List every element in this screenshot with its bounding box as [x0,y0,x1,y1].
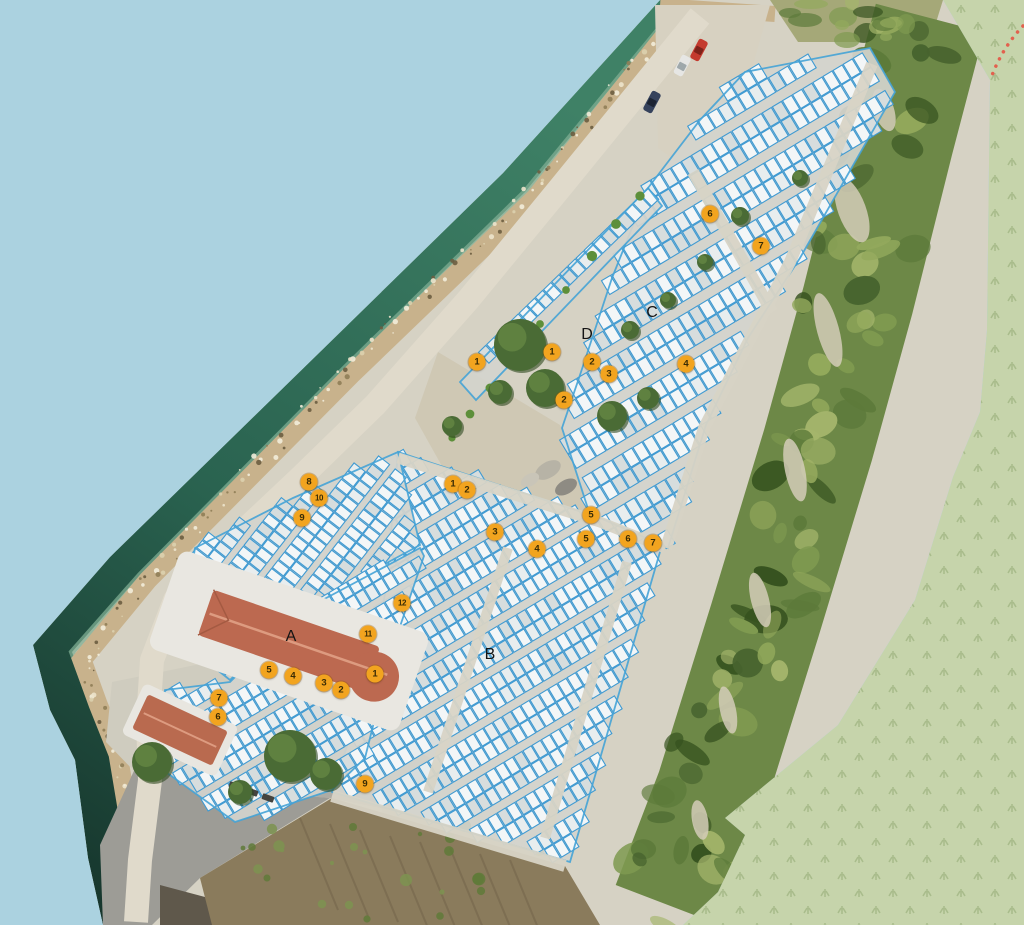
aerial-map-canvas [0,0,1024,925]
zone-label-A: A [286,628,297,646]
berth-marker-3[interactable]: 3 [316,675,333,692]
berth-marker-10[interactable]: 10 [311,490,328,507]
berth-marker-6[interactable]: 6 [210,709,227,726]
berth-marker-12[interactable]: 12 [394,595,411,612]
zone-label-C: C [646,304,658,322]
map-stage: 67112324123455678109121112345769 ABCD [0,0,1024,925]
berth-marker-4[interactable]: 4 [529,541,546,558]
berth-marker-1[interactable]: 1 [469,354,486,371]
berth-marker-2[interactable]: 2 [584,354,601,371]
berth-marker-11[interactable]: 11 [360,626,377,643]
berth-marker-5[interactable]: 5 [583,507,600,524]
berth-marker-3[interactable]: 3 [487,524,504,541]
zone-label-D: D [581,326,593,344]
berth-marker-6[interactable]: 6 [620,531,637,548]
berth-marker-3[interactable]: 3 [601,366,618,383]
berth-marker-9[interactable]: 9 [357,776,374,793]
berth-marker-9[interactable]: 9 [294,510,311,527]
berth-marker-4[interactable]: 4 [678,356,695,373]
berth-marker-7[interactable]: 7 [645,535,662,552]
berth-marker-2[interactable]: 2 [556,392,573,409]
berth-marker-8[interactable]: 8 [301,474,318,491]
zone-label-B: B [485,646,496,664]
berth-marker-1[interactable]: 1 [544,344,561,361]
berth-marker-5[interactable]: 5 [578,531,595,548]
berth-marker-6[interactable]: 6 [702,206,719,223]
berth-marker-5[interactable]: 5 [261,662,278,679]
berth-marker-2[interactable]: 2 [459,482,476,499]
berth-marker-2[interactable]: 2 [333,682,350,699]
berth-marker-7[interactable]: 7 [211,690,228,707]
berth-marker-7[interactable]: 7 [753,238,770,255]
berth-marker-4[interactable]: 4 [285,668,302,685]
berth-marker-1[interactable]: 1 [367,666,384,683]
